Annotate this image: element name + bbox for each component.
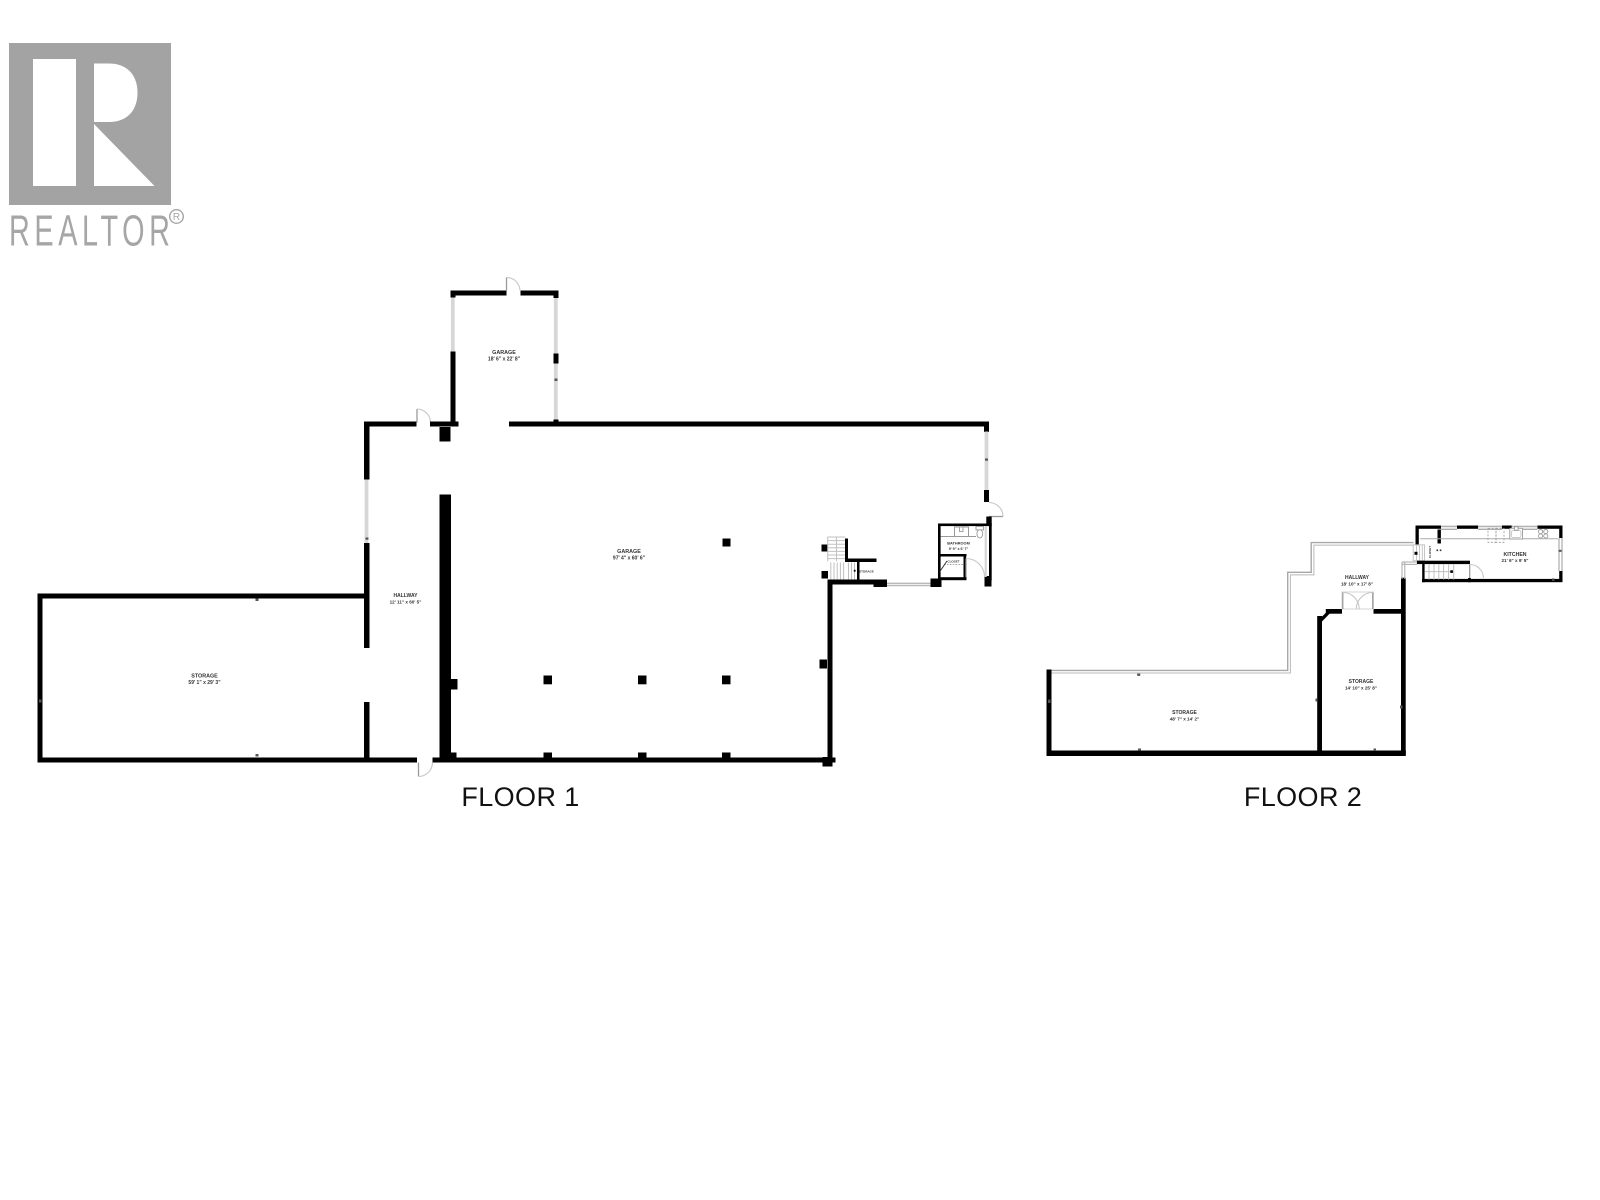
svg-text:GARAGE: GARAGE xyxy=(617,549,641,555)
svg-text:GARAGE: GARAGE xyxy=(492,350,516,356)
svg-text:97' 4" x 60' 6": 97' 4" x 60' 6" xyxy=(613,556,646,562)
svg-text:9' 9" x 6' 7": 9' 9" x 6' 7" xyxy=(949,547,969,551)
svg-text:HALLWAY: HALLWAY xyxy=(394,593,419,599)
svg-text:STORAGE: STORAGE xyxy=(1349,679,1374,685)
svg-text:12' 11" x 60' 5": 12' 11" x 60' 5" xyxy=(390,600,422,605)
svg-text:FLOOR 2: FLOOR 2 xyxy=(1244,782,1362,812)
svg-text:18' 6" x 22' 8": 18' 6" x 22' 8" xyxy=(488,357,521,363)
svg-text:BATHROOM: BATHROOM xyxy=(947,541,970,546)
svg-text:CLOSET: CLOSET xyxy=(1428,546,1432,558)
svg-text:18' 10" x 17' 8": 18' 10" x 17' 8" xyxy=(1341,581,1373,586)
svg-text:59' 1" x 29' 3": 59' 1" x 29' 3" xyxy=(188,680,221,686)
svg-text:STORAGE: STORAGE xyxy=(191,674,218,680)
svg-text:21' 6" x 9' 5": 21' 6" x 9' 5" xyxy=(1502,558,1529,563)
svg-text:FLOOR 1: FLOOR 1 xyxy=(461,782,579,812)
svg-text:48' 7" x 14' 2": 48' 7" x 14' 2" xyxy=(1170,717,1200,722)
svg-text:STORAGE: STORAGE xyxy=(1172,710,1197,716)
svg-text:CLOSET: CLOSET xyxy=(947,560,959,564)
svg-text:14' 10" x 25' 8": 14' 10" x 25' 8" xyxy=(1345,686,1377,691)
svg-text:HALLWAY: HALLWAY xyxy=(1345,575,1370,581)
svg-text:REALTOR: REALTOR xyxy=(9,205,175,255)
svg-text:STORAGE: STORAGE xyxy=(859,569,874,573)
svg-text:R: R xyxy=(173,212,180,223)
